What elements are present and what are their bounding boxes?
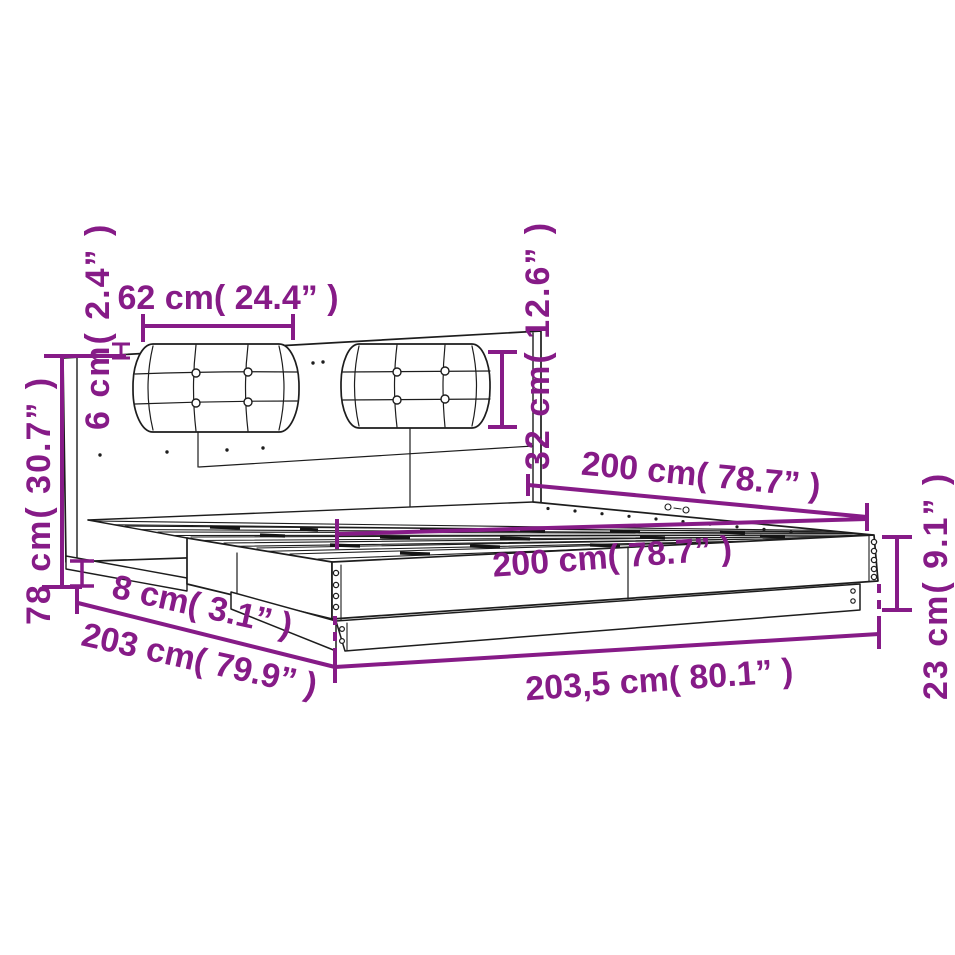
slat-hardware [665,504,689,513]
dim-cushion-width: 62 cm( 24.4” ) [117,279,338,342]
bed-dimension-diagram: 62 cm( 24.4” ) 6 cm( 2.4” ) 78 cm( 30.7”… [0,0,955,955]
cushion-right [341,344,490,428]
cushion-left [133,344,299,432]
cushion-width-label: 62 cm( 24.4” ) [117,279,338,317]
bed-length-label: 200 cm( 78.7” ) [580,445,823,506]
frame-height-label: 23 cm( 9.1” ) [917,472,955,700]
headboard-height-label: 78 cm( 30.7” ) [20,376,58,625]
diagram-canvas: 62 cm( 24.4” ) 6 cm( 2.4” ) 78 cm( 30.7”… [0,0,955,955]
cushion-thickness-label: 6 cm( 2.4” ) [79,223,117,430]
dim-frame-height: 23 cm( 9.1” ) [882,472,955,700]
total-length-label: 203,5 cm( 80.1” ) [524,652,794,709]
cushion-height-label: 32 cm( 12.6” ) [519,221,557,470]
